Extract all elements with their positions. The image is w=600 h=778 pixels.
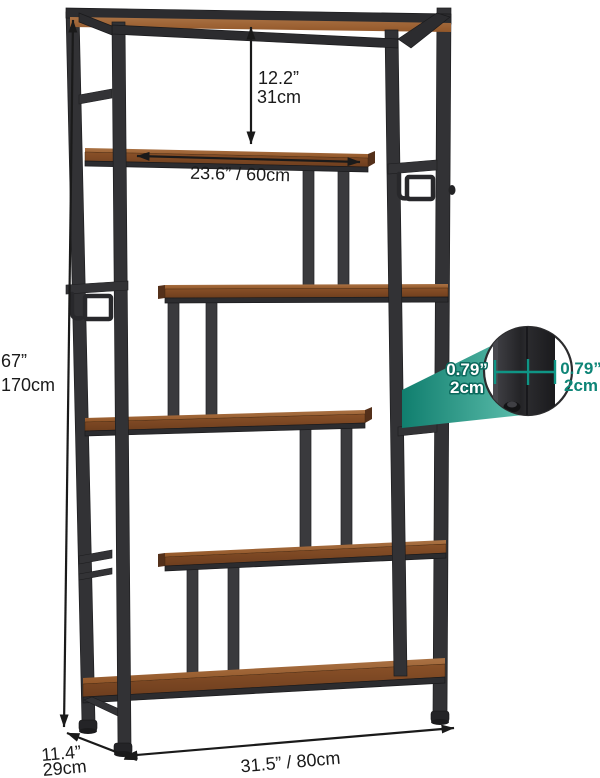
overall-depth-label-metric: 29cm — [42, 756, 88, 778]
tube-width-left-imperial: 0.79” — [446, 360, 488, 379]
shelf5-end-cap — [158, 553, 165, 567]
shelf2-end-cap — [368, 151, 375, 167]
shelf2-support-frame — [338, 168, 349, 285]
hook — [407, 177, 433, 199]
frame-post-front-left — [112, 22, 131, 745]
shelf3-end-cap — [158, 285, 165, 299]
bookshelf-illustration: 0.79” 2cm 0.79” 2cm 12.2” 31cm 23.6” / 6… — [0, 0, 600, 778]
shelf4-support-frame — [341, 427, 352, 545]
hook — [85, 296, 111, 319]
tube-width-left-metric: 2cm — [450, 378, 484, 397]
shelf3-support-frame — [168, 301, 179, 416]
shelf3-front — [165, 288, 448, 298]
overall-height-label-imperial: 67” — [1, 351, 27, 371]
frame-post-back-left — [66, 12, 95, 722]
frame-post-front-right — [385, 30, 407, 676]
overall-height-label-metric: 170cm — [1, 375, 55, 395]
shelf3-frame — [165, 297, 448, 303]
product-dimension-diagram: 0.79” 2cm 0.79” 2cm 12.2” 31cm 23.6” / 6… — [0, 0, 600, 778]
shelf-length-label: 23.6” / 60cm — [190, 163, 291, 186]
left-brace — [79, 89, 112, 104]
inner-height-label-imperial: 12.2” — [258, 68, 299, 88]
shelf2-support-frame — [303, 167, 314, 285]
shelf5-support-frame — [187, 568, 198, 673]
inner-height-label-metric: 31cm — [257, 87, 301, 107]
shelf5-support-frame — [228, 566, 239, 671]
shelf4-support-frame — [300, 428, 311, 547]
overall-width-label: 31.5” / 80cm — [240, 748, 341, 777]
overall-depth-label: 11.4” 29cm — [41, 741, 88, 778]
shelf4-end-cap — [365, 407, 372, 423]
shelf3-support-frame — [206, 300, 217, 415]
tube-cross-section — [493, 326, 555, 416]
tube-width-right-metric: 2cm — [564, 376, 598, 395]
frame-peg — [449, 185, 456, 195]
